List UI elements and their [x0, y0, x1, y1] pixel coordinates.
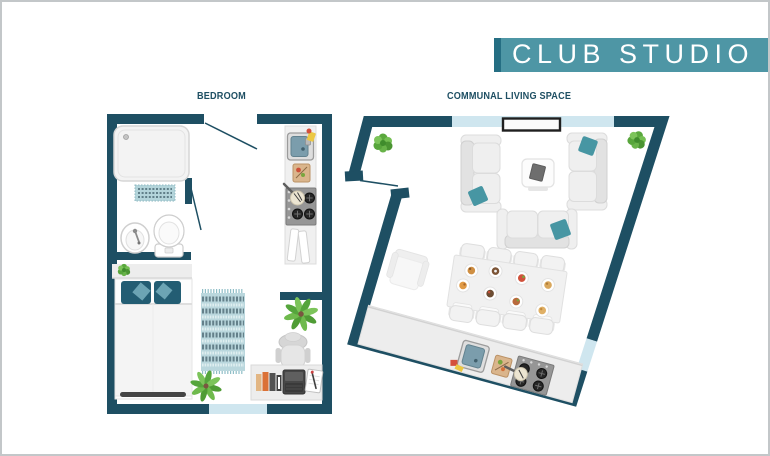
communal-floorplan	[345, 119, 662, 403]
kitchenette-sink	[288, 129, 317, 161]
sofa-bottom	[497, 209, 577, 249]
washbasin	[121, 223, 149, 253]
window	[209, 404, 267, 414]
plant-icon-top-left	[374, 134, 393, 153]
desk	[251, 365, 323, 400]
wall-bottom-left	[107, 404, 209, 414]
wall-top-left-segment	[354, 122, 452, 175]
wall-tv	[503, 119, 560, 131]
floorplan-canvas: CLUB STUDIO BEDROOM COMMUNAL LIVING SPAC…	[0, 0, 770, 456]
wall-bottom-right	[267, 404, 332, 414]
entry-door-swing	[205, 123, 257, 149]
desk-chair	[276, 333, 311, 369]
bathroom-door-swing	[189, 180, 201, 230]
footboard	[120, 392, 186, 397]
window-right	[582, 340, 592, 370]
stove-hob	[284, 184, 316, 225]
coffee-table	[522, 159, 554, 191]
bed-pillows-redraw	[121, 281, 181, 304]
laptop	[283, 370, 305, 394]
shower	[114, 126, 189, 181]
bath-mat	[135, 185, 175, 201]
dining-set	[445, 242, 569, 336]
kitchenette	[284, 126, 316, 264]
wall-stub-door-lower	[391, 193, 409, 195]
communal-door-swing	[360, 181, 398, 187]
shower-drain	[124, 135, 129, 140]
toilet	[154, 215, 184, 257]
wall-stub-door-upper	[345, 176, 363, 177]
notepad	[305, 369, 323, 393]
bedroom-floorplan	[107, 114, 332, 414]
wall-top-right	[257, 114, 332, 124]
cutting-board	[293, 164, 310, 182]
armchair	[385, 248, 431, 292]
rug	[201, 291, 245, 372]
wall-top-left	[107, 114, 204, 124]
plant-icon-top-right	[625, 128, 648, 151]
sofa-left	[461, 135, 501, 212]
kitchenette-partition-wall	[280, 292, 322, 300]
flush-button	[165, 248, 173, 253]
sofa-right	[567, 133, 607, 210]
floorplan-svg	[2, 2, 770, 456]
wall-right	[322, 114, 332, 414]
